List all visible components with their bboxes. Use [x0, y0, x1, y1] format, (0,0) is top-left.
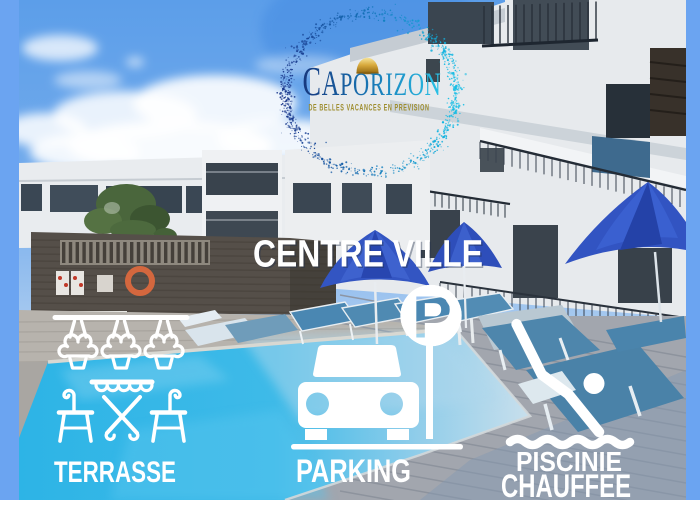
- svg-text:DE BELLES VACANCES EN PREVISIO: DE BELLES VACANCES EN PREVISION: [309, 103, 430, 113]
- svg-text:CHAUFFEE: CHAUFFEE: [501, 468, 631, 500]
- svg-text:TERRASSE: TERRASSE: [54, 456, 176, 489]
- svg-text:CENTRE VILLE: CENTRE VILLE: [253, 234, 483, 276]
- svg-text:PARKING: PARKING: [296, 453, 411, 489]
